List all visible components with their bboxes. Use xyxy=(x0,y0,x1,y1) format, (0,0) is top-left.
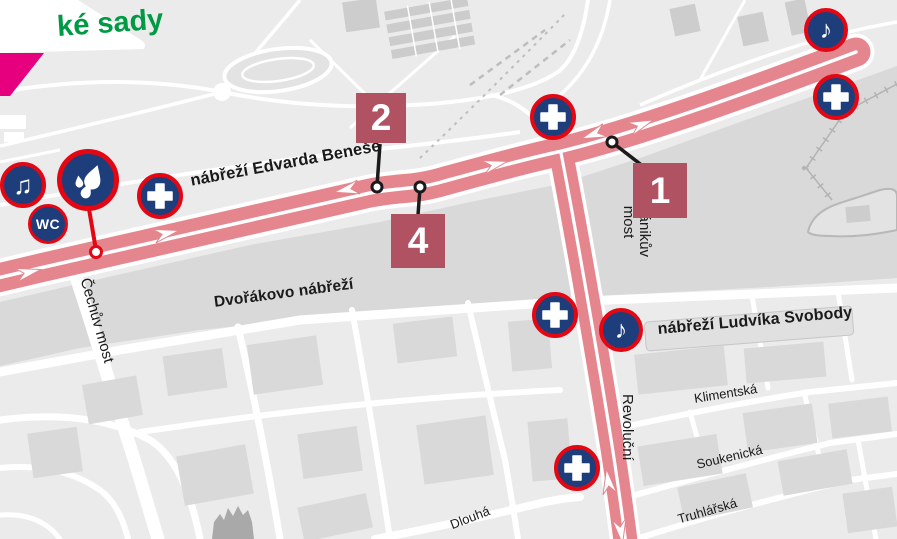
course-map: ké sady nábřeží Edvarda Beneše Dvořákovo… xyxy=(0,0,897,539)
first-aid-icon[interactable] xyxy=(532,292,578,338)
water-station-icon[interactable] xyxy=(57,149,119,211)
park-building xyxy=(4,132,24,142)
first-aid-icon[interactable] xyxy=(137,173,183,219)
wc-icon[interactable]: WC xyxy=(28,204,68,244)
building xyxy=(669,4,700,37)
island-building xyxy=(845,205,870,223)
park-building xyxy=(0,115,26,129)
map-canvas xyxy=(0,0,897,539)
first-aid-icon[interactable] xyxy=(554,445,600,491)
building xyxy=(342,0,380,32)
water-drops-glyph xyxy=(68,160,108,200)
street-label-revolucni: Revoluční xyxy=(619,394,636,461)
first-aid-icon[interactable] xyxy=(813,74,859,120)
building xyxy=(737,12,769,47)
km-marker-2[interactable]: 2 xyxy=(356,93,406,143)
km-marker-1[interactable]: 1 xyxy=(633,163,687,218)
cross-glyph xyxy=(146,182,174,210)
church-building xyxy=(212,506,254,539)
first-aid-icon[interactable] xyxy=(530,94,576,140)
stadium-track xyxy=(222,42,335,99)
km-marker-4[interactable]: 4 xyxy=(391,214,445,268)
greenhouse-buildings xyxy=(384,0,476,61)
music-point-icon[interactable]: ♪ xyxy=(599,308,643,352)
music-point-icon[interactable]: ♫ xyxy=(0,162,46,208)
music-point-icon[interactable]: ♪ xyxy=(804,8,848,52)
